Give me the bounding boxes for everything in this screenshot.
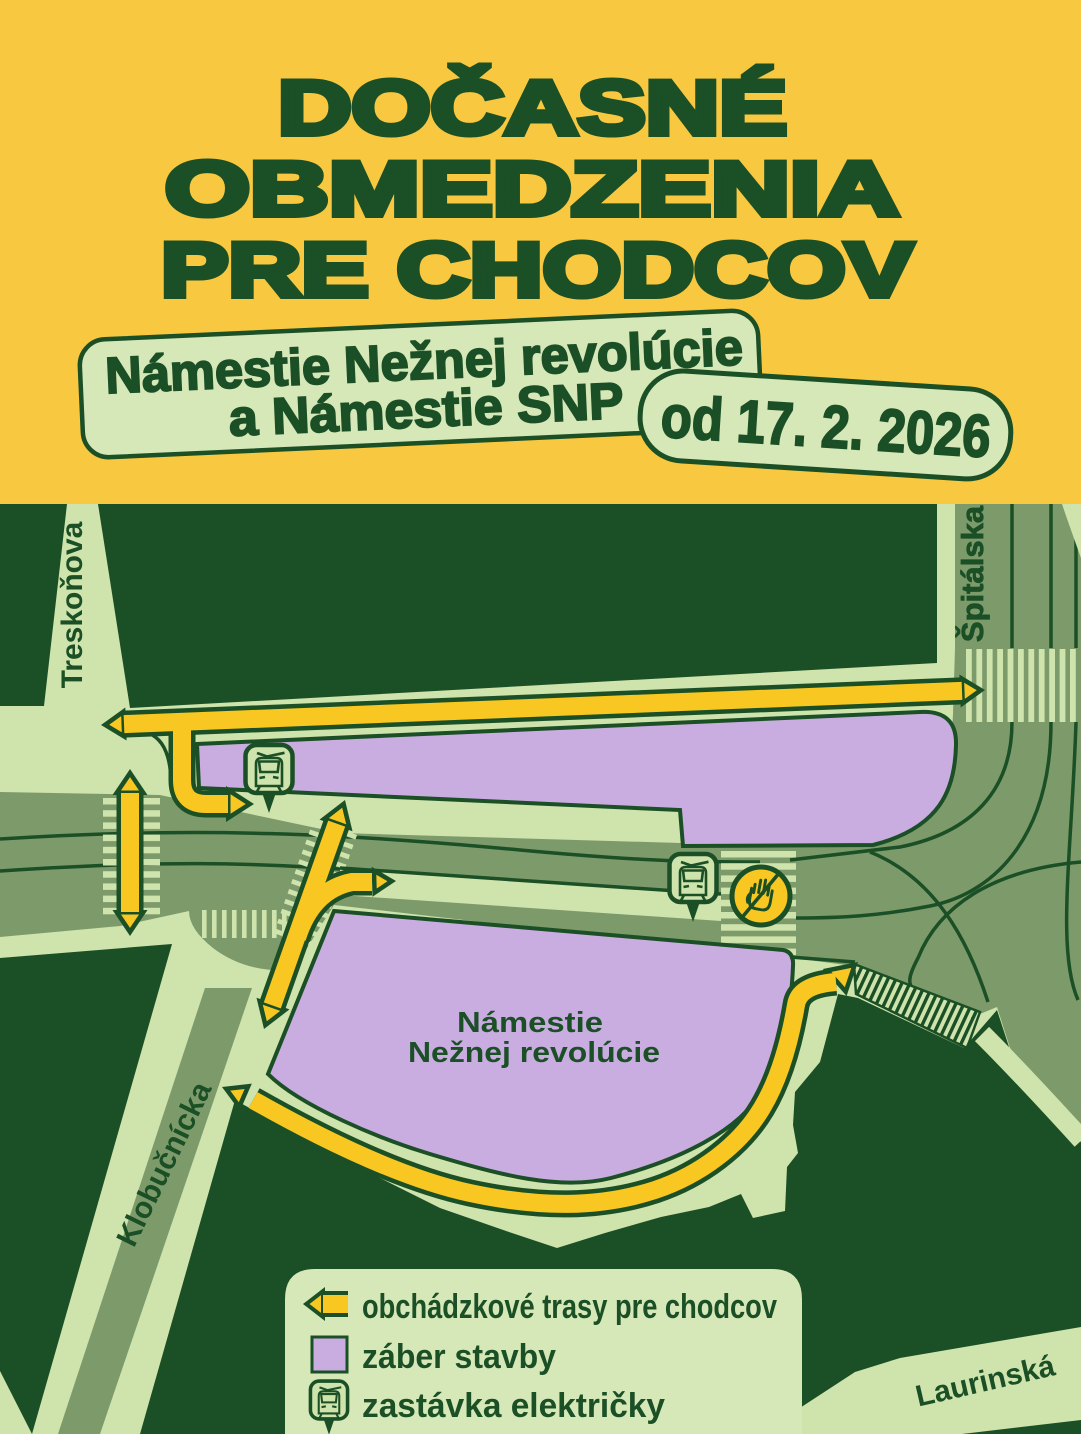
svg-text:Námestie: Námestie [457, 1007, 603, 1039]
svg-text:OBMEDZENIA: OBMEDZENIA [165, 147, 899, 232]
svg-text:Treskoňova: Treskoňova [56, 521, 89, 688]
svg-text:DOČASNÉ: DOČASNÉ [278, 66, 787, 151]
svg-text:Nežnej revolúcie: Nežnej revolúcie [408, 1037, 660, 1069]
svg-text:zastávka električky: zastávka električky [362, 1387, 665, 1425]
svg-text:obchádzkové trasy pre chodcov: obchádzkové trasy pre chodcov [362, 1288, 777, 1326]
svg-text:Špitálska: Špitálska [954, 505, 990, 642]
svg-text:záber stavby: záber stavby [362, 1338, 556, 1376]
svg-text:PRE CHODCOV: PRE CHODCOV [161, 228, 913, 313]
